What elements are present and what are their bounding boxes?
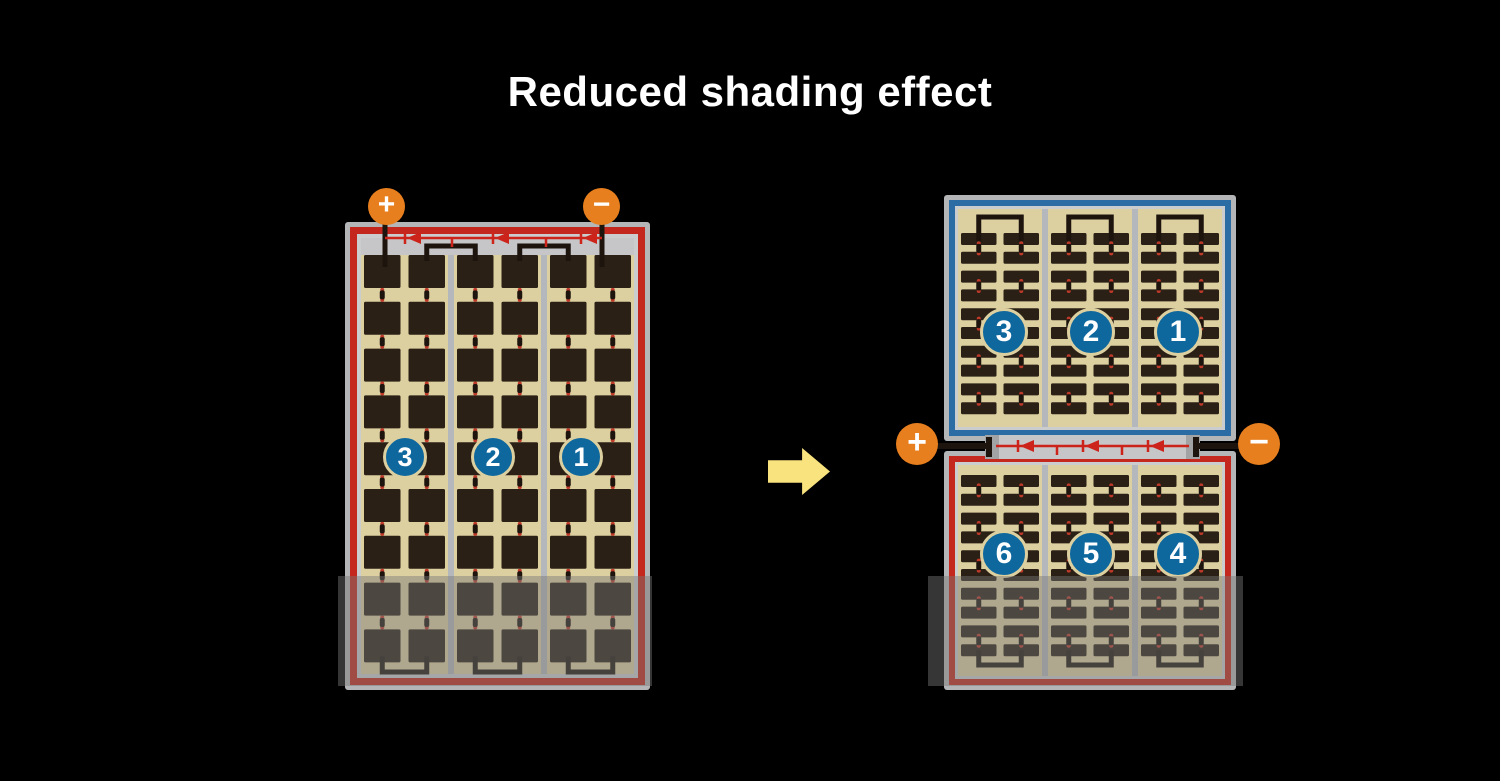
positive-terminal-icon: + bbox=[896, 423, 938, 465]
bypass-diode-strip bbox=[930, 432, 1255, 462]
badge-label: 6 bbox=[996, 537, 1013, 571]
badge-label: 3 bbox=[397, 442, 412, 473]
positive-terminal-icon: + bbox=[368, 188, 405, 225]
badge-label: 1 bbox=[573, 442, 588, 473]
transform-arrow-icon bbox=[768, 448, 830, 495]
negative-terminal-icon: − bbox=[583, 188, 620, 225]
negative-terminal-icon: − bbox=[1238, 423, 1280, 465]
badge-label: 5 bbox=[1083, 537, 1100, 571]
minus-symbol: − bbox=[1249, 425, 1269, 459]
badge-label: 2 bbox=[1083, 315, 1100, 349]
string-number-badge: 2 bbox=[471, 435, 515, 479]
shadow-overlay-right bbox=[928, 576, 1243, 686]
string-number-badge: 2 bbox=[1067, 308, 1115, 356]
badge-label: 1 bbox=[1170, 315, 1187, 349]
badge-label: 4 bbox=[1170, 537, 1187, 571]
minus-symbol: − bbox=[593, 190, 611, 220]
badge-label: 3 bbox=[996, 315, 1013, 349]
string-number-badge: 5 bbox=[1067, 530, 1115, 578]
string-number-badge: 3 bbox=[383, 435, 427, 479]
badge-label: 2 bbox=[485, 442, 500, 473]
diagram-canvas: Reduced shading effect + − 3 2 1 + − 3 2… bbox=[0, 0, 1500, 781]
page-title: Reduced shading effect bbox=[0, 68, 1500, 116]
string-number-badge: 1 bbox=[559, 435, 603, 479]
string-number-badge: 1 bbox=[1154, 308, 1202, 356]
string-number-badge: 6 bbox=[980, 530, 1028, 578]
plus-symbol: + bbox=[907, 425, 927, 459]
plus-symbol: + bbox=[378, 190, 396, 220]
string-number-badge: 3 bbox=[980, 308, 1028, 356]
string-number-badge: 4 bbox=[1154, 530, 1202, 578]
shadow-overlay-left bbox=[338, 576, 652, 686]
